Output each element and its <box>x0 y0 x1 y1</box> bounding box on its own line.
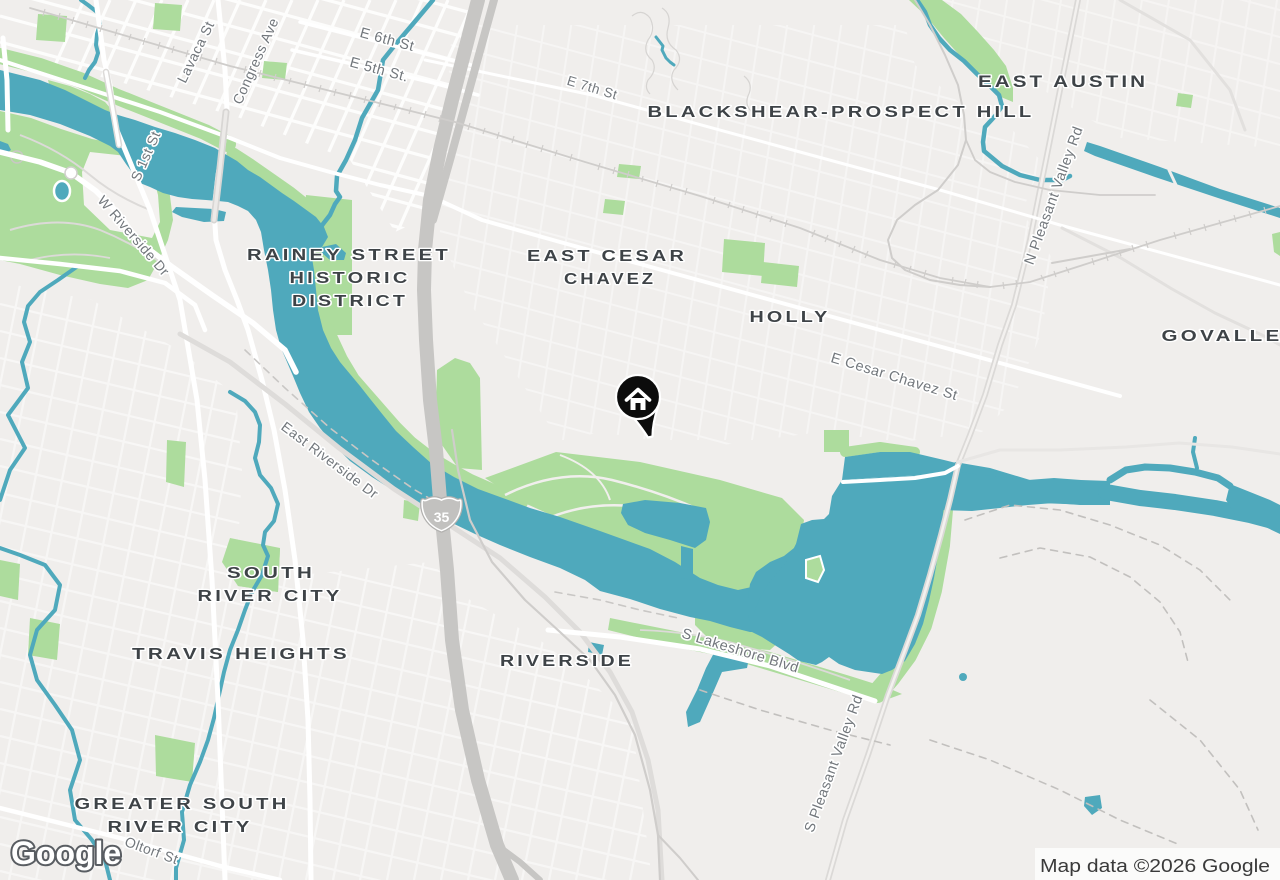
svg-text:RIVERSIDE: RIVERSIDE <box>500 653 634 670</box>
svg-text:GREATER SOUTH: GREATER SOUTH <box>75 796 290 813</box>
svg-text:SOUTH: SOUTH <box>227 565 315 582</box>
svg-text:35: 35 <box>434 509 450 525</box>
svg-text:RIVER CITY: RIVER CITY <box>198 588 343 605</box>
svg-text:Map data ©2026 Google: Map data ©2026 Google <box>1040 856 1270 876</box>
svg-text:EAST CESAR: EAST CESAR <box>527 248 687 265</box>
svg-text:RAINEY STREET: RAINEY STREET <box>247 247 451 264</box>
svg-text:CHAVEZ: CHAVEZ <box>564 271 656 288</box>
svg-text:RIVER CITY: RIVER CITY <box>108 819 253 836</box>
svg-text:EAST AUSTIN: EAST AUSTIN <box>978 72 1148 91</box>
svg-text:BLACKSHEAR-PROSPECT HILL: BLACKSHEAR-PROSPECT HILL <box>648 104 1035 121</box>
svg-text:GOVALLE: GOVALLE <box>1162 328 1280 345</box>
svg-text:HOLLY: HOLLY <box>750 309 831 326</box>
svg-text:Google: Google <box>11 835 121 871</box>
svg-text:TRAVIS HEIGHTS: TRAVIS HEIGHTS <box>132 646 350 663</box>
svg-text:DISTRICT: DISTRICT <box>292 293 408 310</box>
svg-text:HISTORIC: HISTORIC <box>290 270 411 287</box>
